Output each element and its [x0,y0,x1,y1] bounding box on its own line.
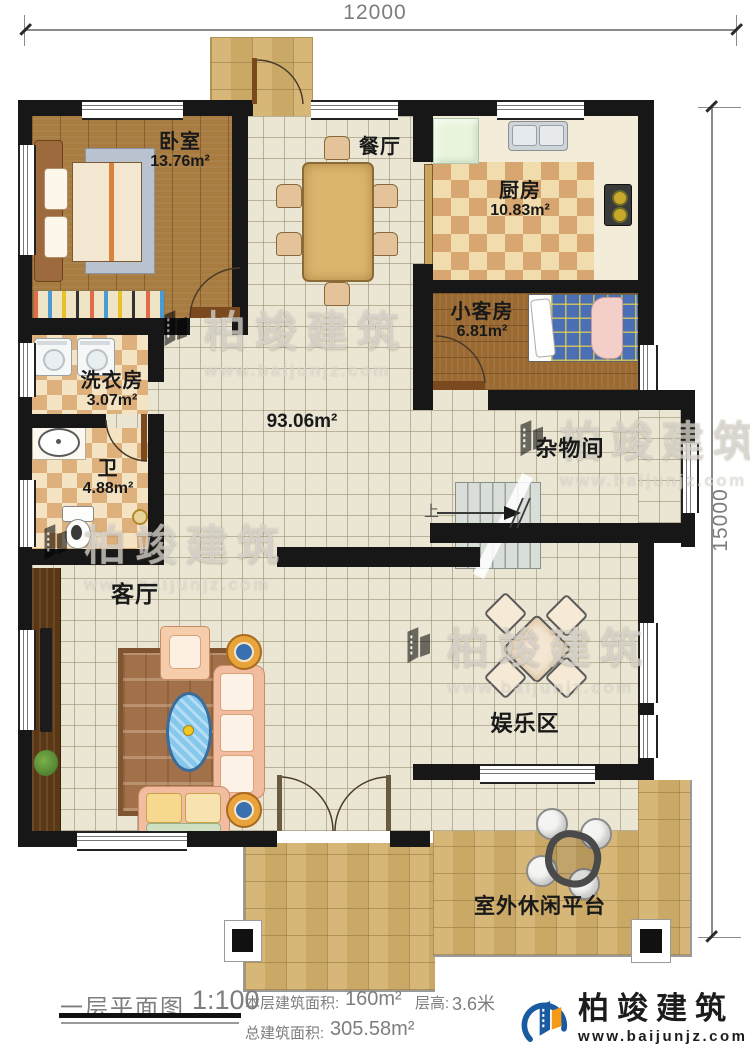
wall [18,414,106,428]
total-area-value: 305.58m² [330,1018,415,1041]
faucet-dot [56,439,61,444]
company-logo: 柏竣建筑 www.baijunjz.com [518,993,747,1049]
column-core [232,929,253,952]
wall [638,703,654,715]
wall [488,390,695,410]
window [82,100,183,120]
room-area: 10.83m² [470,202,570,220]
floor-drain [132,509,148,525]
logo-window [542,1024,544,1027]
logo-window [542,1019,544,1022]
window [18,630,36,730]
guest-bed-quilt [591,297,623,359]
sofa-main [213,665,265,799]
window [681,443,699,513]
wall [187,831,277,847]
window [18,145,36,255]
wall [18,730,32,847]
dining-chair [372,184,398,208]
guest-bed [528,294,640,362]
wall [183,100,253,116]
bed-headboard [34,140,63,282]
dimension-height-label: 15000 [709,465,733,575]
dining-chair [324,282,350,306]
title-underline-thin [61,1022,239,1024]
washer-panel [37,341,67,345]
loveseat-cushion [185,793,221,823]
column-core [640,929,662,953]
floor-area-value: 160m² [345,988,402,1011]
logo-window [542,1009,544,1012]
kitchen-sliding-door [424,164,433,266]
wardrobe [33,290,165,320]
wall [18,397,32,480]
wall [413,390,433,410]
bathroom-sink [38,428,80,457]
wall [638,543,654,623]
dimension-width-line [25,29,737,31]
company-logo-icon [518,993,570,1049]
floor-plan-canvas: 12000 15000 [0,0,750,1057]
window [638,715,658,758]
wall [595,764,654,780]
window [497,100,584,120]
side-table [226,792,262,828]
wall [277,547,480,567]
side-table-inner [234,800,254,820]
room-label-bathroom: 卫 4.88m² [58,458,158,498]
room-area: 4.88m² [58,480,158,498]
title-underline-thick [59,1013,241,1018]
kitchen-sink [508,121,568,151]
room-area: 93.06m² [252,411,352,432]
coffee-table [166,692,212,772]
wall [18,831,77,847]
room-label-terrace: 室外休闲平台 [455,895,625,919]
burner [612,190,628,206]
company-website: www.baijunjz.com [578,1028,747,1045]
dining-table [302,162,374,282]
window [311,100,398,120]
side-table-inner [234,642,254,662]
room-name: 小客房 [430,301,534,323]
column [631,919,671,963]
room-name: 娱乐区 [470,712,580,737]
wall [232,116,248,335]
window [638,623,658,703]
fridge [433,118,479,164]
room-label-bedroom: 卧室 13.76m² [130,131,230,171]
bed [72,162,142,262]
wall [18,100,32,145]
washer-drum [86,349,108,371]
dimension-width-label: 12000 [320,1,430,25]
washer-drum [43,349,65,371]
room-label-hall-area: 93.06m² [252,411,352,432]
sofa-cushion [220,714,254,752]
wall [638,100,654,345]
wall [430,523,695,543]
storage-floor-extension [638,410,681,523]
sink-basin [512,125,537,146]
floor-area-label: 本层建筑面积: [245,992,339,1013]
wall [413,280,654,293]
logo-building-orange [552,1007,562,1030]
room-label-guest-room: 小客房 6.81m² [430,301,534,341]
bed-pillow [44,168,68,210]
column [224,920,262,962]
room-name: 卫 [58,458,158,480]
window [18,480,36,547]
room-name: 客厅 [85,582,185,608]
room-name: 洗衣房 [60,370,164,392]
room-name: 杂物间 [515,437,625,462]
armchair-cushion [169,635,201,669]
burner [612,207,628,223]
window [480,764,595,784]
washer-panel [80,341,110,345]
room-label-entertainment: 娱乐区 [470,712,580,737]
wall [18,318,190,335]
sofa-cushion [220,673,254,711]
stove [604,184,632,226]
wall [390,831,430,847]
window [77,831,187,851]
window [18,343,36,397]
room-area: 13.76m² [130,153,230,171]
toilet-seat [71,525,82,540]
wall [413,764,480,780]
room-name: 餐厅 [330,136,430,158]
logo-window [542,1014,544,1017]
total-area-label: 总建筑面积: [245,1022,324,1043]
wall [398,100,497,116]
dimension-extension [698,107,741,108]
dimension-extension [698,937,741,938]
room-area: 3.07m² [60,392,164,410]
room-label-storage: 杂物间 [515,437,625,462]
toilet-bowl [65,519,91,549]
room-name: 厨房 [470,180,570,202]
bed-pillow [44,216,68,258]
terrace-floor-left [243,843,435,992]
wall [18,549,164,565]
loveseat-cushion [146,793,182,823]
side-table [226,634,262,670]
table-decor [183,725,194,736]
room-area: 6.81m² [430,323,534,341]
wall [681,410,695,443]
dimension-height-line [711,108,713,938]
dining-chair [276,184,302,208]
room-label-laundry: 洗衣房 3.07m² [60,370,164,410]
room-label-kitchen: 厨房 10.83m² [470,180,570,220]
stair-up-label: 上 [424,500,439,521]
armchair [160,626,210,680]
room-name: 卧室 [130,131,230,153]
company-name: 柏竣建筑 [578,993,747,1024]
storey-height-value: 3.6米 [452,990,495,1016]
dining-chair [372,232,398,256]
logo-building-blue [540,1001,550,1036]
sink-basin [539,125,564,146]
room-label-dining: 餐厅 [330,136,430,158]
tv [40,628,52,732]
room-label-living-room: 客厅 [85,582,185,608]
dining-chair [276,232,302,256]
room-name: 室外休闲平台 [455,895,625,919]
storey-height-label: 层高: [415,992,449,1013]
